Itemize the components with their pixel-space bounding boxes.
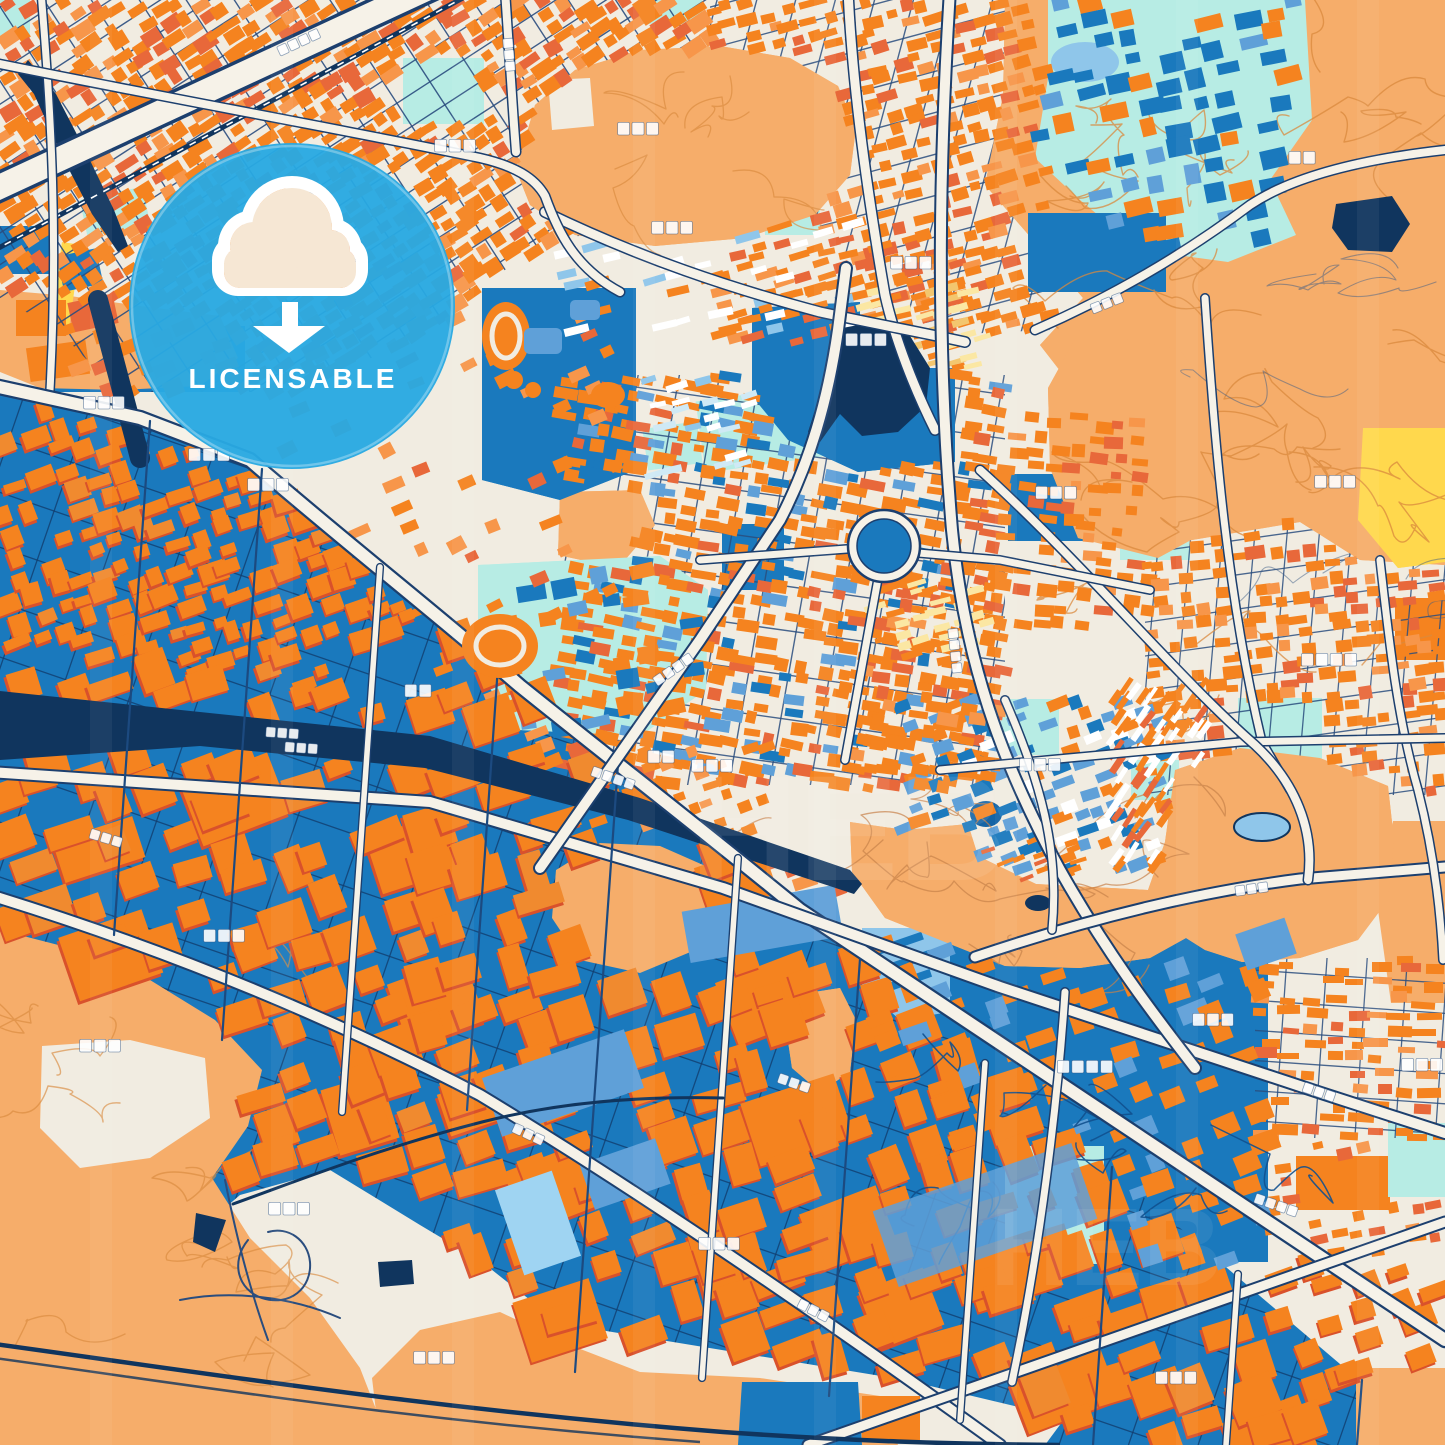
svg-text:LICENSABLE: LICENSABLE (189, 363, 398, 394)
svg-text:HEB: HEB (990, 1186, 1222, 1309)
svg-text:HEB: HEB (690, 744, 1007, 912)
